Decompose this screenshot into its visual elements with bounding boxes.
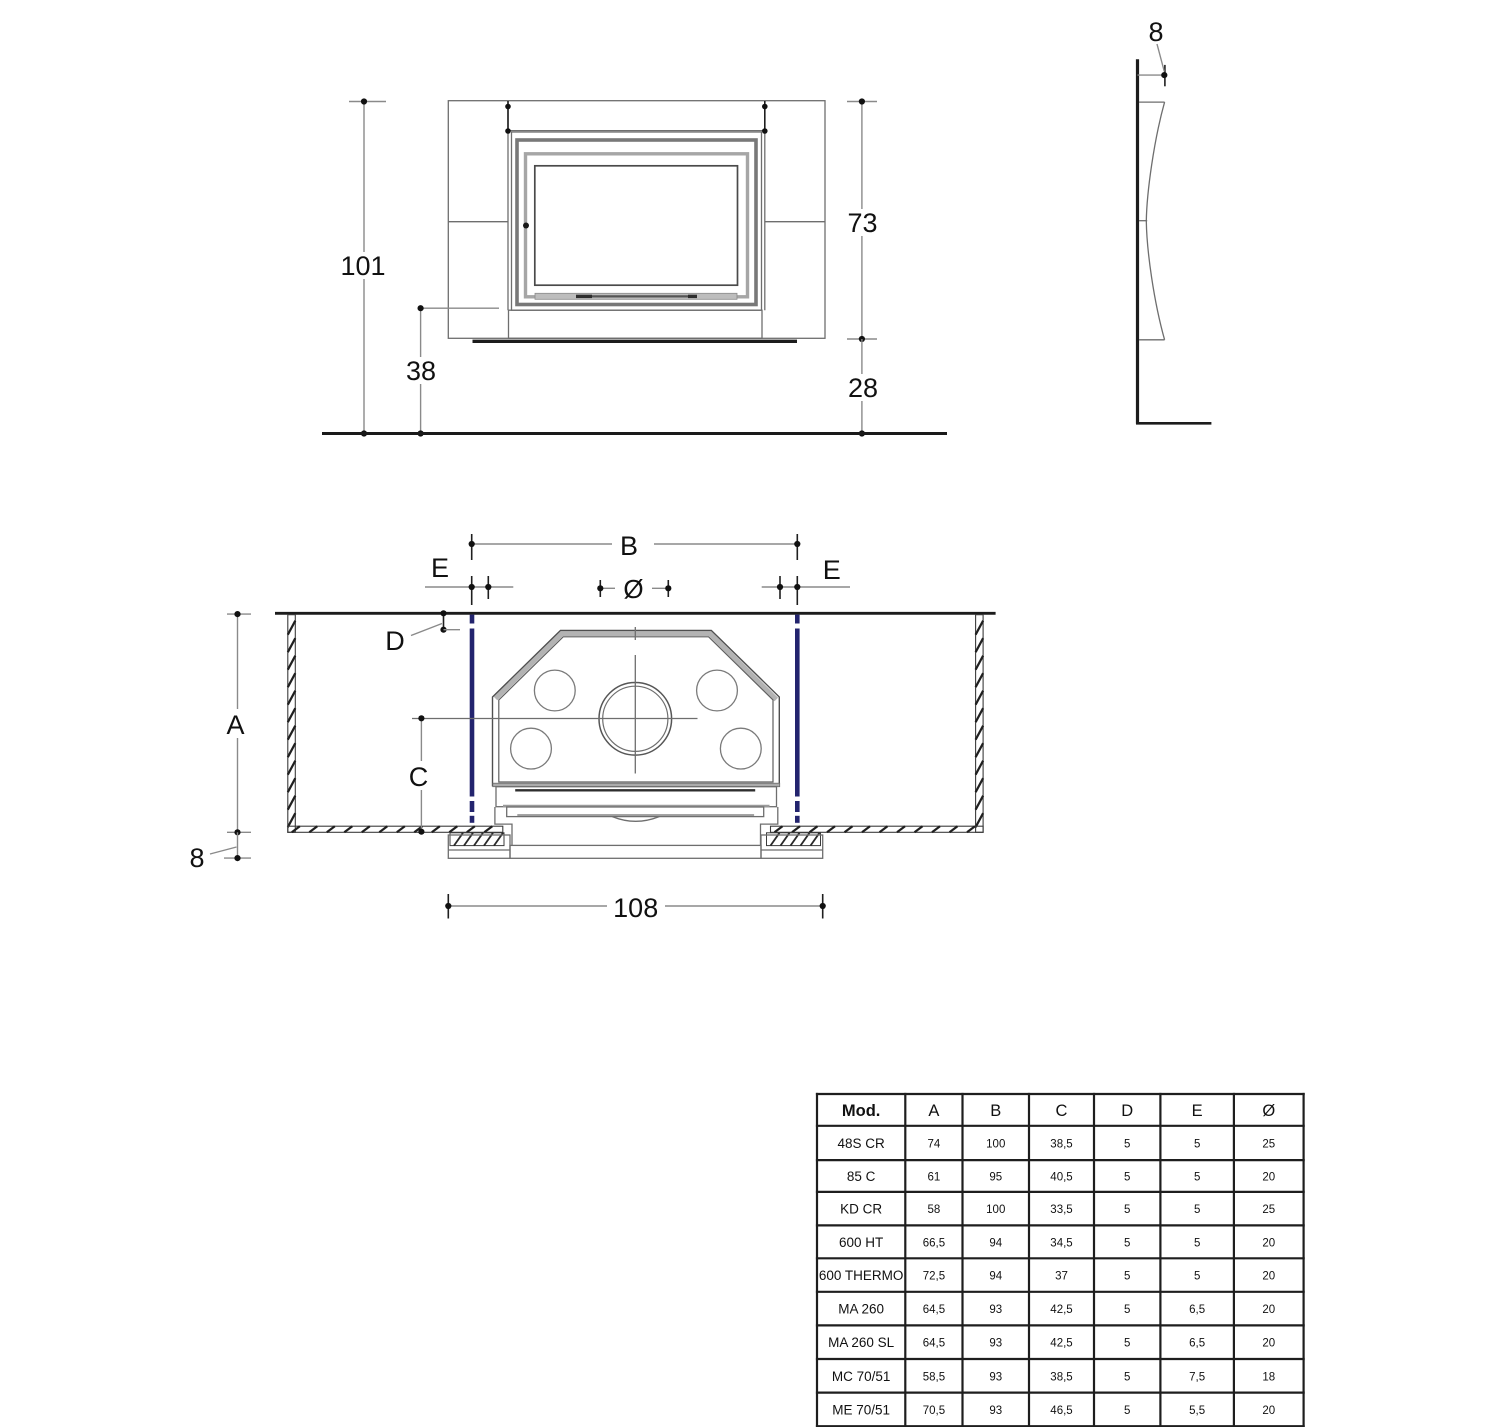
svg-text:Ø: Ø <box>1262 1102 1275 1120</box>
svg-text:64,5: 64,5 <box>923 1304 945 1316</box>
svg-text:46,5: 46,5 <box>1050 1405 1072 1417</box>
svg-text:MC 70/51: MC 70/51 <box>832 1369 891 1384</box>
svg-text:B: B <box>990 1102 1001 1120</box>
svg-text:C: C <box>409 762 429 792</box>
svg-text:74: 74 <box>928 1138 941 1150</box>
svg-text:42,5: 42,5 <box>1050 1338 1072 1350</box>
svg-text:5,5: 5,5 <box>1189 1405 1205 1417</box>
svg-text:33,5: 33,5 <box>1050 1204 1072 1216</box>
svg-text:58,5: 58,5 <box>923 1371 945 1383</box>
svg-text:64,5: 64,5 <box>923 1338 945 1350</box>
svg-text:ME 70/51: ME 70/51 <box>832 1402 890 1417</box>
svg-text:100: 100 <box>986 1204 1005 1216</box>
svg-text:34,5: 34,5 <box>1050 1237 1072 1249</box>
svg-text:5: 5 <box>1124 1371 1130 1383</box>
svg-text:20: 20 <box>1262 1338 1275 1350</box>
svg-text:38: 38 <box>406 356 436 386</box>
svg-text:28: 28 <box>848 373 878 403</box>
svg-text:600 THERMO: 600 THERMO <box>819 1268 904 1283</box>
svg-text:40,5: 40,5 <box>1050 1172 1072 1184</box>
svg-text:38,5: 38,5 <box>1050 1138 1072 1150</box>
svg-text:58: 58 <box>928 1204 941 1216</box>
svg-text:61: 61 <box>928 1172 941 1184</box>
svg-text:93: 93 <box>989 1371 1002 1383</box>
svg-text:5: 5 <box>1124 1172 1130 1184</box>
svg-text:600 HT: 600 HT <box>839 1235 883 1250</box>
svg-text:MA 260 SL: MA 260 SL <box>828 1335 895 1350</box>
svg-text:8: 8 <box>1148 17 1163 47</box>
svg-text:5: 5 <box>1194 1271 1200 1283</box>
svg-text:D: D <box>1121 1102 1133 1120</box>
svg-text:20: 20 <box>1262 1271 1275 1283</box>
svg-text:6,5: 6,5 <box>1189 1304 1205 1316</box>
svg-text:66,5: 66,5 <box>923 1237 945 1249</box>
svg-text:37: 37 <box>1055 1271 1068 1283</box>
svg-text:Mod.: Mod. <box>842 1102 881 1120</box>
svg-text:108: 108 <box>613 893 658 923</box>
svg-text:20: 20 <box>1262 1405 1275 1417</box>
svg-text:A: A <box>928 1102 939 1120</box>
svg-text:85 C: 85 C <box>847 1169 876 1184</box>
svg-text:25: 25 <box>1262 1138 1275 1150</box>
svg-text:100: 100 <box>986 1138 1005 1150</box>
svg-text:7,5: 7,5 <box>1189 1371 1205 1383</box>
svg-text:KD CR: KD CR <box>840 1202 882 1217</box>
svg-text:42,5: 42,5 <box>1050 1304 1072 1316</box>
svg-text:48S CR: 48S CR <box>838 1136 886 1151</box>
svg-text:101: 101 <box>340 251 385 281</box>
svg-text:E: E <box>431 553 449 583</box>
svg-text:5: 5 <box>1194 1172 1200 1184</box>
svg-text:MA 260: MA 260 <box>838 1302 884 1317</box>
svg-text:20: 20 <box>1262 1172 1275 1184</box>
svg-text:5: 5 <box>1124 1204 1130 1216</box>
svg-text:93: 93 <box>989 1405 1002 1417</box>
svg-text:18: 18 <box>1262 1371 1275 1383</box>
svg-text:94: 94 <box>989 1237 1002 1249</box>
svg-text:5: 5 <box>1194 1138 1200 1150</box>
svg-text:B: B <box>620 531 638 561</box>
svg-text:94: 94 <box>989 1271 1002 1283</box>
svg-text:A: A <box>226 710 244 740</box>
svg-text:Ø: Ø <box>623 574 643 604</box>
svg-text:E: E <box>823 555 841 585</box>
svg-text:20: 20 <box>1262 1304 1275 1316</box>
svg-text:93: 93 <box>989 1304 1002 1316</box>
svg-text:5: 5 <box>1194 1204 1200 1216</box>
svg-text:8: 8 <box>189 843 204 873</box>
svg-text:5: 5 <box>1124 1405 1130 1417</box>
svg-text:D: D <box>385 626 405 656</box>
svg-text:E: E <box>1192 1102 1203 1120</box>
svg-text:5: 5 <box>1124 1304 1130 1316</box>
svg-text:5: 5 <box>1124 1271 1130 1283</box>
svg-text:38,5: 38,5 <box>1050 1371 1072 1383</box>
svg-text:5: 5 <box>1124 1237 1130 1249</box>
svg-text:20: 20 <box>1262 1237 1275 1249</box>
svg-text:95: 95 <box>989 1172 1002 1184</box>
svg-text:25: 25 <box>1262 1204 1275 1216</box>
svg-text:5: 5 <box>1124 1138 1130 1150</box>
svg-text:6,5: 6,5 <box>1189 1338 1205 1350</box>
svg-text:93: 93 <box>989 1338 1002 1350</box>
svg-text:70,5: 70,5 <box>923 1405 945 1417</box>
svg-text:5: 5 <box>1124 1338 1130 1350</box>
svg-text:5: 5 <box>1194 1237 1200 1249</box>
svg-text:72,5: 72,5 <box>923 1271 945 1283</box>
svg-text:73: 73 <box>847 208 877 238</box>
svg-text:C: C <box>1056 1102 1068 1120</box>
